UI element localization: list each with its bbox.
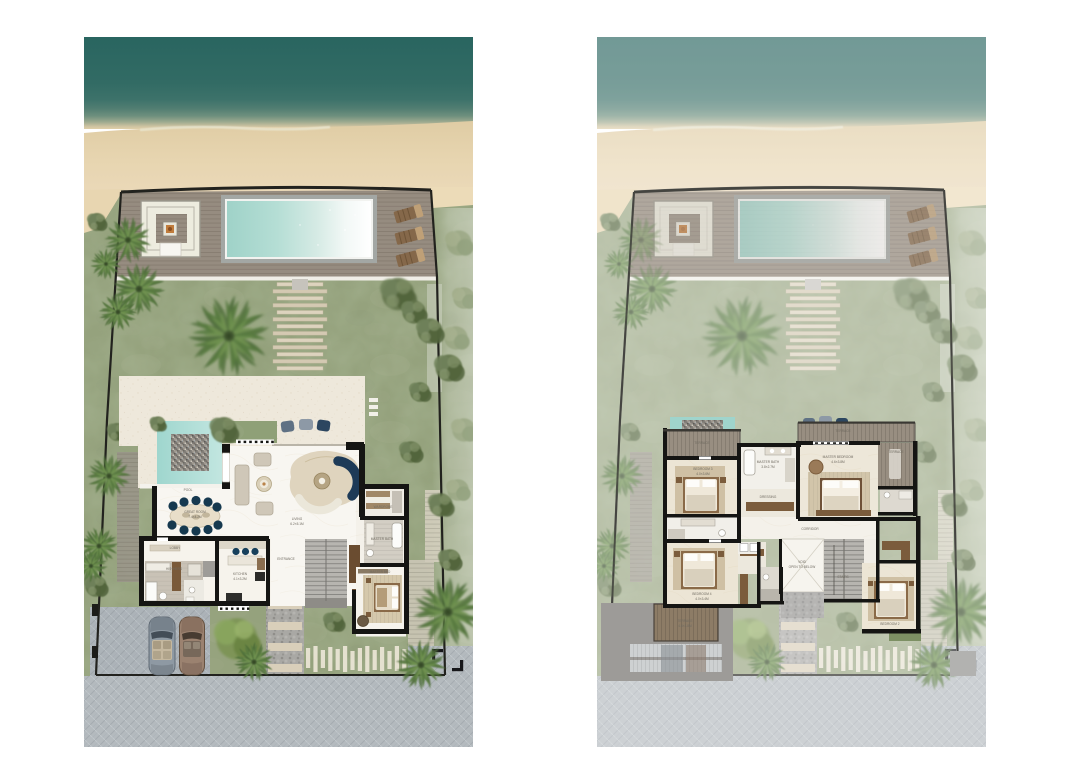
svg-text:ENTRANCE: ENTRANCE bbox=[277, 557, 295, 561]
svg-text:GREAT ROOM: GREAT ROOM bbox=[184, 510, 206, 514]
svg-text:4.6×3.8M: 4.6×3.8M bbox=[831, 460, 845, 464]
svg-text:POOL: POOL bbox=[184, 488, 193, 492]
svg-text:4.0×3.6M: 4.0×3.6M bbox=[696, 472, 710, 476]
svg-text:LOBBY: LOBBY bbox=[170, 546, 182, 550]
svg-text:CORRIDOR: CORRIDOR bbox=[801, 527, 819, 531]
svg-text:STAIRS: STAIRS bbox=[837, 575, 848, 579]
svg-text:TERRACE: TERRACE bbox=[677, 619, 692, 623]
svg-text:TERRACE: TERRACE bbox=[694, 441, 709, 445]
svg-text:TERRACE: TERRACE bbox=[888, 450, 903, 454]
svg-text:4.1×3.2M: 4.1×3.2M bbox=[233, 577, 247, 581]
svg-text:KITCHEN: KITCHEN bbox=[233, 572, 248, 576]
svg-text:HIS+HERS: HIS+HERS bbox=[166, 567, 182, 571]
svg-text:6.2×5.1M: 6.2×5.1M bbox=[290, 522, 304, 526]
svg-text:MASTER BATH: MASTER BATH bbox=[757, 460, 780, 464]
svg-text:DRESSING: DRESSING bbox=[760, 495, 777, 499]
svg-text:MASTER BATH: MASTER BATH bbox=[371, 537, 394, 541]
svg-text:WARDROBE: WARDROBE bbox=[374, 505, 393, 509]
svg-text:LIVING: LIVING bbox=[292, 517, 303, 521]
svg-text:3.8×2.7M: 3.8×2.7M bbox=[761, 465, 775, 469]
svg-text:BEDROOM 2: BEDROOM 2 bbox=[880, 622, 899, 626]
svg-text:BEDROOM 4: BEDROOM 4 bbox=[692, 592, 711, 596]
svg-text:MASTER BED: MASTER BED bbox=[370, 570, 391, 574]
svg-text:BEDROOM 3: BEDROOM 3 bbox=[693, 467, 712, 471]
svg-text:4.0×3.4M: 4.0×3.4M bbox=[695, 597, 709, 601]
svg-text:7.4×4.2M: 7.4×4.2M bbox=[188, 515, 202, 519]
svg-text:4.6×1.8M: 4.6×1.8M bbox=[678, 624, 692, 628]
svg-text:OPEN TO BELOW: OPEN TO BELOW bbox=[789, 565, 816, 569]
svg-text:VOID: VOID bbox=[798, 560, 806, 564]
svg-text:TERRACE: TERRACE bbox=[835, 429, 850, 433]
svg-text:MASTER BEDROOM: MASTER BEDROOM bbox=[823, 455, 854, 459]
